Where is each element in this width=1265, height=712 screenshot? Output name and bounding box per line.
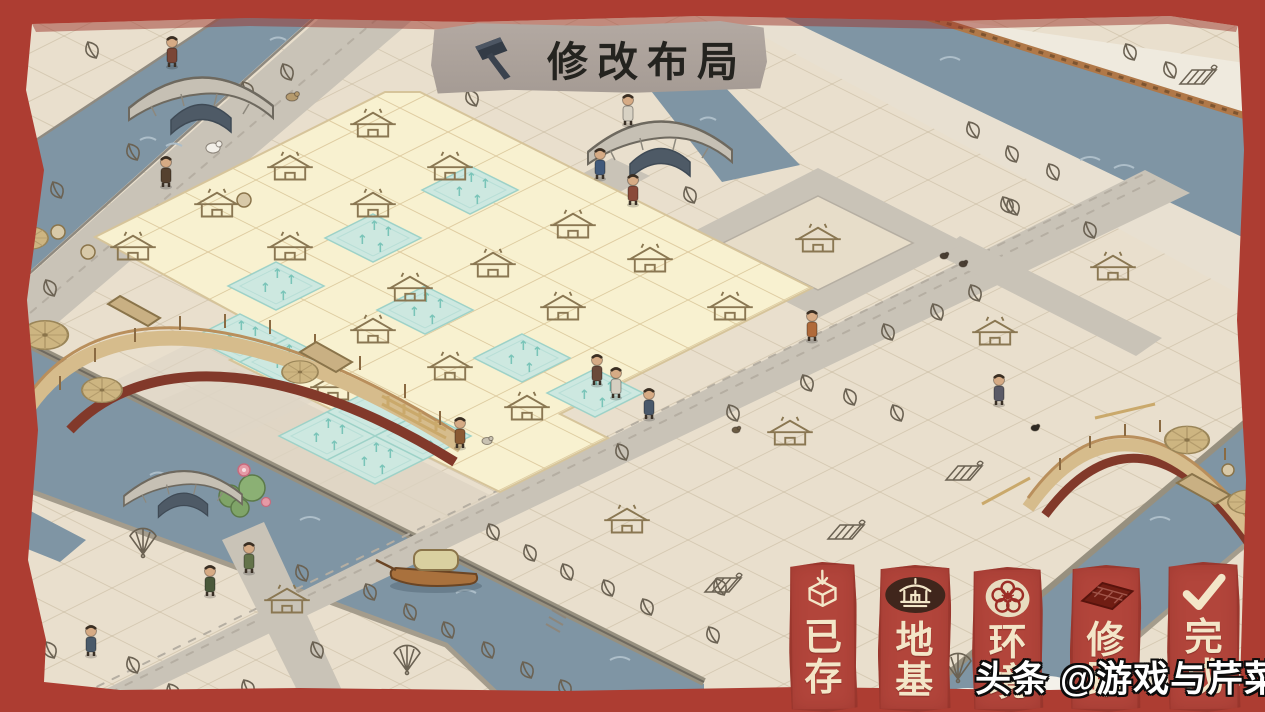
- foundation-button[interactable]: 地基: [877, 565, 951, 712]
- svg-text:↑: ↑: [472, 193, 483, 208]
- game-screen: ↑↑↑↑↑↑↑↑↑↑↑↑↑↑↑↑↑↑↑↑↑↑↑↑↑↑↑↑↑↑↑↑↑↑↑↑↑↑↑↑…: [0, 0, 1265, 712]
- svg-text:↑: ↑: [409, 305, 420, 320]
- hammer-icon: [469, 35, 523, 81]
- svg-text:↑: ↑: [579, 388, 590, 403]
- svg-text:↑: ↑: [286, 273, 297, 288]
- svg-text:↑: ↑: [435, 297, 446, 312]
- svg-text:↑: ↑: [518, 339, 529, 354]
- svg-text:↑: ↑: [377, 463, 388, 478]
- foundation-building-icon: [884, 571, 946, 619]
- svg-text:↑: ↑: [260, 281, 271, 296]
- svg-text:↑: ↑: [311, 431, 322, 446]
- svg-text:↑: ↑: [371, 441, 382, 456]
- svg-text:↑: ↑: [329, 439, 340, 454]
- svg-text:↑: ↑: [357, 233, 368, 248]
- svg-text:↑: ↑: [278, 289, 289, 304]
- checkmark-icon: [1177, 568, 1229, 616]
- svg-text:↑: ↑: [383, 225, 394, 240]
- svg-text:↑: ↑: [369, 219, 380, 234]
- watermark: 头条 @游戏与芹菜: [975, 650, 1265, 702]
- svg-text:↑: ↑: [427, 313, 438, 328]
- svg-text:↑: ↑: [506, 353, 517, 368]
- svg-text:↑: ↑: [359, 455, 370, 470]
- saved-layouts-button[interactable]: 已存: [788, 562, 858, 712]
- svg-text:↑: ↑: [480, 177, 491, 192]
- road-tiles-icon: [1078, 571, 1134, 619]
- foundation-button-label: 地基: [895, 621, 934, 701]
- save-box-icon: [799, 568, 846, 616]
- mode-banner: 修改布局: [431, 21, 767, 95]
- svg-text:↑: ↑: [597, 396, 608, 411]
- svg-text:↑: ↑: [466, 171, 477, 186]
- svg-text:↑: ↑: [532, 345, 543, 360]
- plum-blossom-icon: [981, 573, 1033, 621]
- svg-text:↑: ↑: [337, 423, 348, 438]
- svg-text:↑: ↑: [421, 291, 432, 306]
- svg-text:↑: ↑: [272, 267, 283, 282]
- svg-text:↑: ↑: [385, 447, 396, 462]
- svg-text:↑: ↑: [236, 319, 247, 334]
- svg-text:↑: ↑: [323, 417, 334, 432]
- svg-text:↑: ↑: [524, 361, 535, 376]
- svg-text:↑: ↑: [454, 185, 465, 200]
- mode-banner-label: 修改布局: [547, 28, 747, 88]
- svg-text:↑: ↑: [375, 241, 386, 256]
- saved-button-label: 已存: [804, 618, 843, 698]
